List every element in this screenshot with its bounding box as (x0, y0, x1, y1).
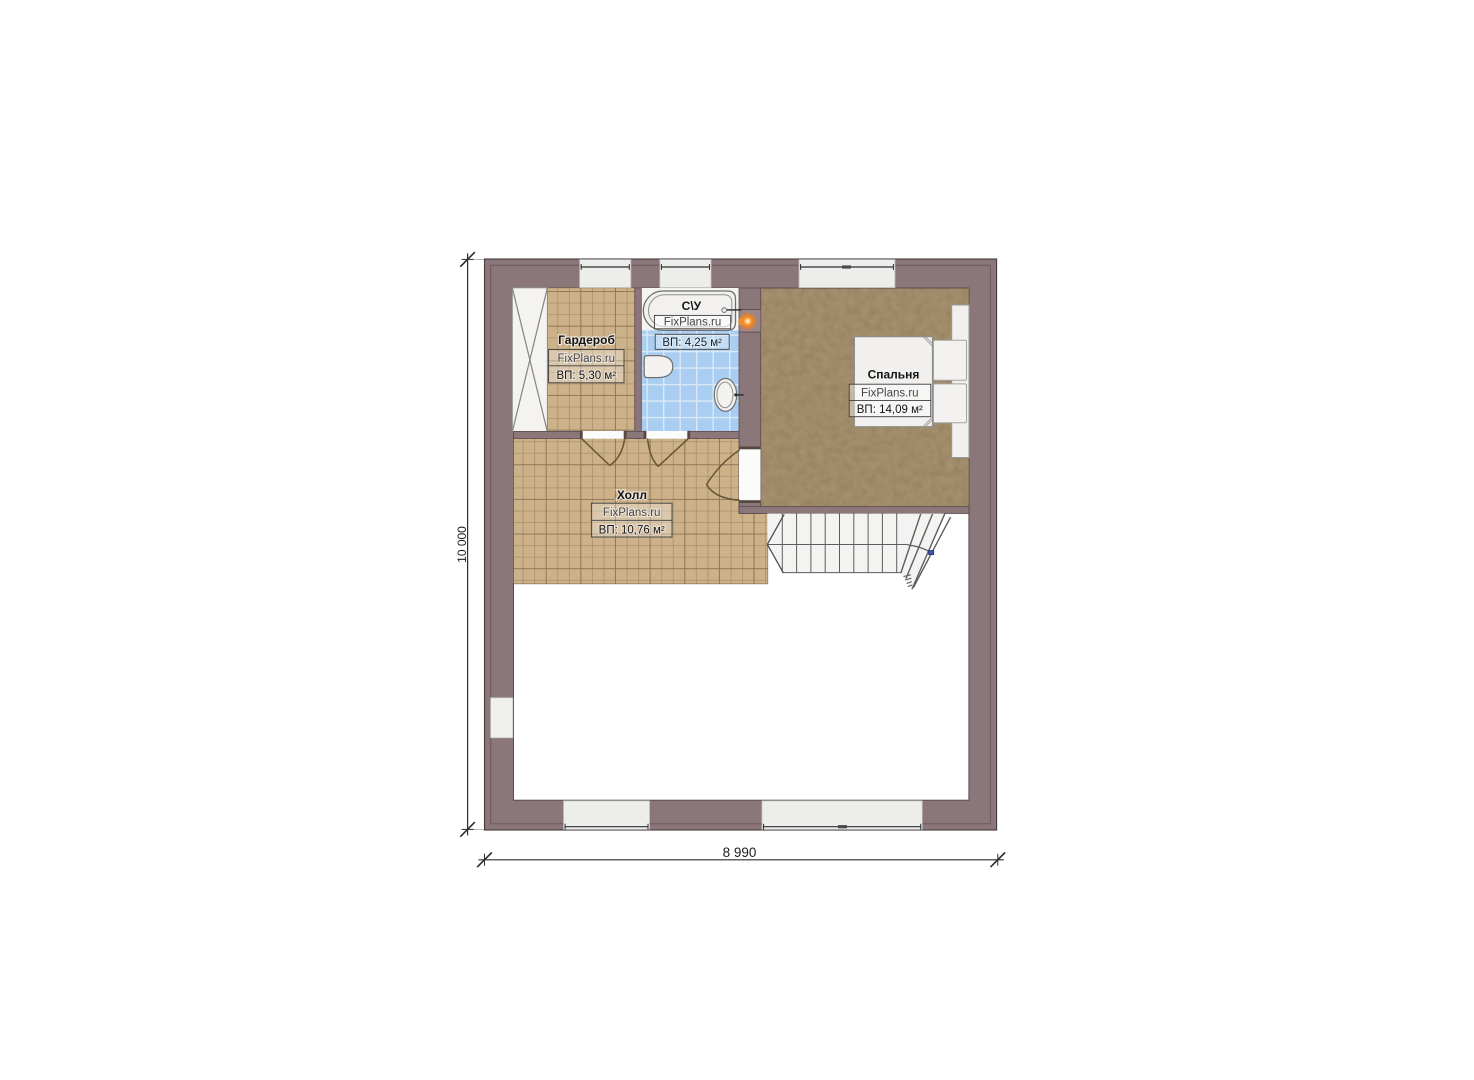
svg-text:Спальня: Спальня (868, 367, 920, 381)
svg-text:10 000: 10 000 (455, 526, 469, 563)
svg-text:FixPlans.ru: FixPlans.ru (558, 353, 616, 365)
svg-text:ВП: 4,25 м²: ВП: 4,25 м² (662, 337, 722, 349)
svg-text:FixPlans.ru: FixPlans.ru (603, 507, 661, 519)
svg-text:FixPlans.ru: FixPlans.ru (664, 317, 722, 329)
svg-text:ВП: 5,30 м²: ВП: 5,30 м² (556, 370, 616, 382)
svg-text:ВП: 10,76 м²: ВП: 10,76 м² (599, 524, 665, 536)
svg-text:С\У: С\У (682, 299, 702, 313)
svg-text:FixPlans.ru: FixPlans.ru (861, 388, 919, 400)
svg-text:Холл: Холл (617, 488, 647, 502)
svg-text:ВП: 14,09 м²: ВП: 14,09 м² (857, 404, 923, 416)
svg-text:8 990: 8 990 (723, 845, 757, 860)
svg-text:Гардероб: Гардероб (558, 333, 615, 347)
